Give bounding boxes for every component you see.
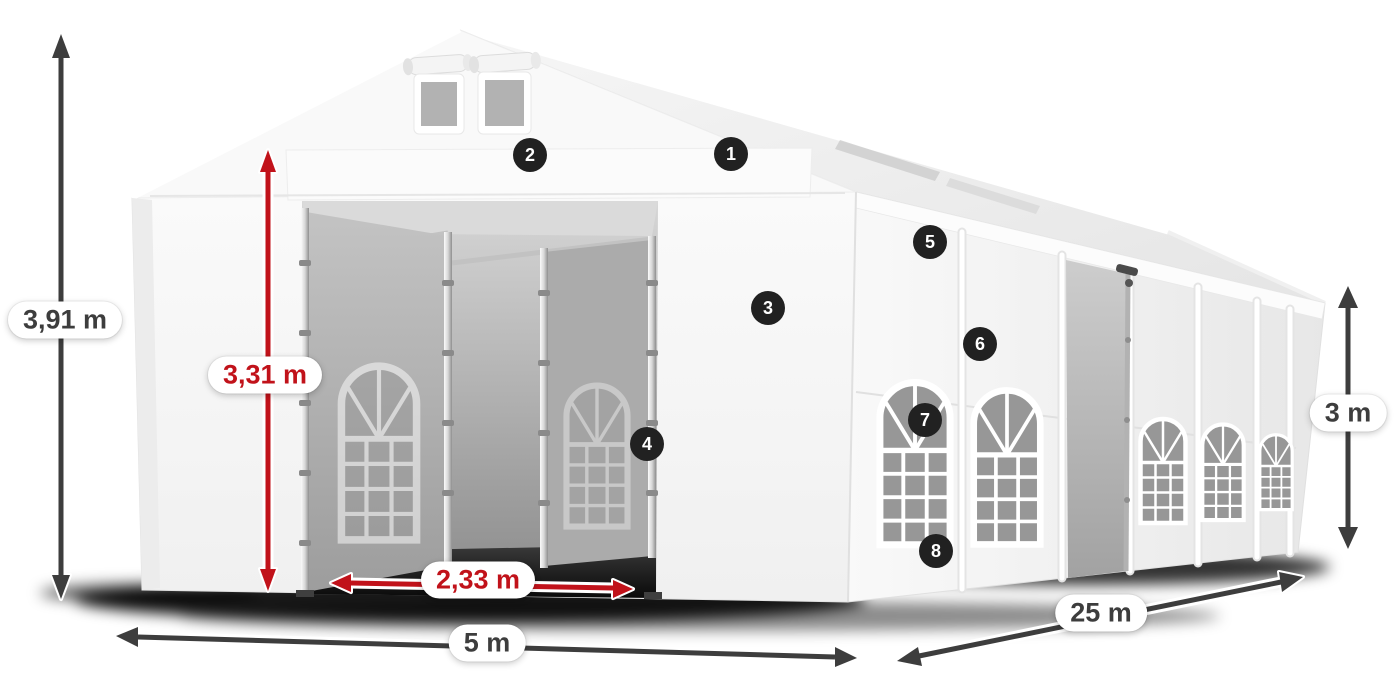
dimension-label-entrance-height: 3,31 m [208, 356, 322, 393]
side-window-5 [1260, 434, 1292, 509]
callout-badge-5[interactable]: 5 [913, 225, 947, 259]
callout-badge-4[interactable]: 4 [630, 427, 664, 461]
dimension-label-gable-width: 5 m [449, 624, 526, 661]
dimension-label-length: 25 m [1055, 594, 1147, 631]
tent-illustration [0, 0, 1400, 700]
dimension-label-side-height: 3 m [1310, 394, 1387, 431]
curtain-window [566, 385, 627, 527]
side-window-3 [1141, 419, 1186, 524]
side-window-2 [974, 390, 1041, 545]
dimension-label-total-height: 3,91 m [8, 301, 122, 338]
vent-window-mesh [485, 80, 524, 126]
callout-badge-3[interactable]: 3 [751, 291, 785, 325]
entrance-opening [296, 201, 662, 599]
callout-badge-8[interactable]: 8 [919, 534, 953, 568]
callout-badge-1[interactable]: 1 [714, 137, 748, 171]
side-window-4 [1202, 424, 1243, 520]
side-door-opening [1066, 260, 1139, 578]
vent-roll-tube [473, 52, 536, 73]
entrance-curtain-left [306, 212, 448, 592]
callout-badge-7[interactable]: 7 [908, 403, 942, 437]
curtain-window [341, 365, 416, 539]
vent-window-mesh [421, 82, 457, 126]
callout-badge-6[interactable]: 6 [963, 327, 997, 361]
tent-dimension-diagram: 3,91 m 3,31 m 2,33 m 5 m 25 m 3 m 1 2 3 … [0, 0, 1400, 700]
vent-roll-tube [407, 54, 468, 75]
callout-badge-2[interactable]: 2 [513, 138, 547, 172]
dimension-label-entrance-width: 2,33 m [421, 561, 535, 598]
entrance-curtain-right [544, 240, 652, 566]
